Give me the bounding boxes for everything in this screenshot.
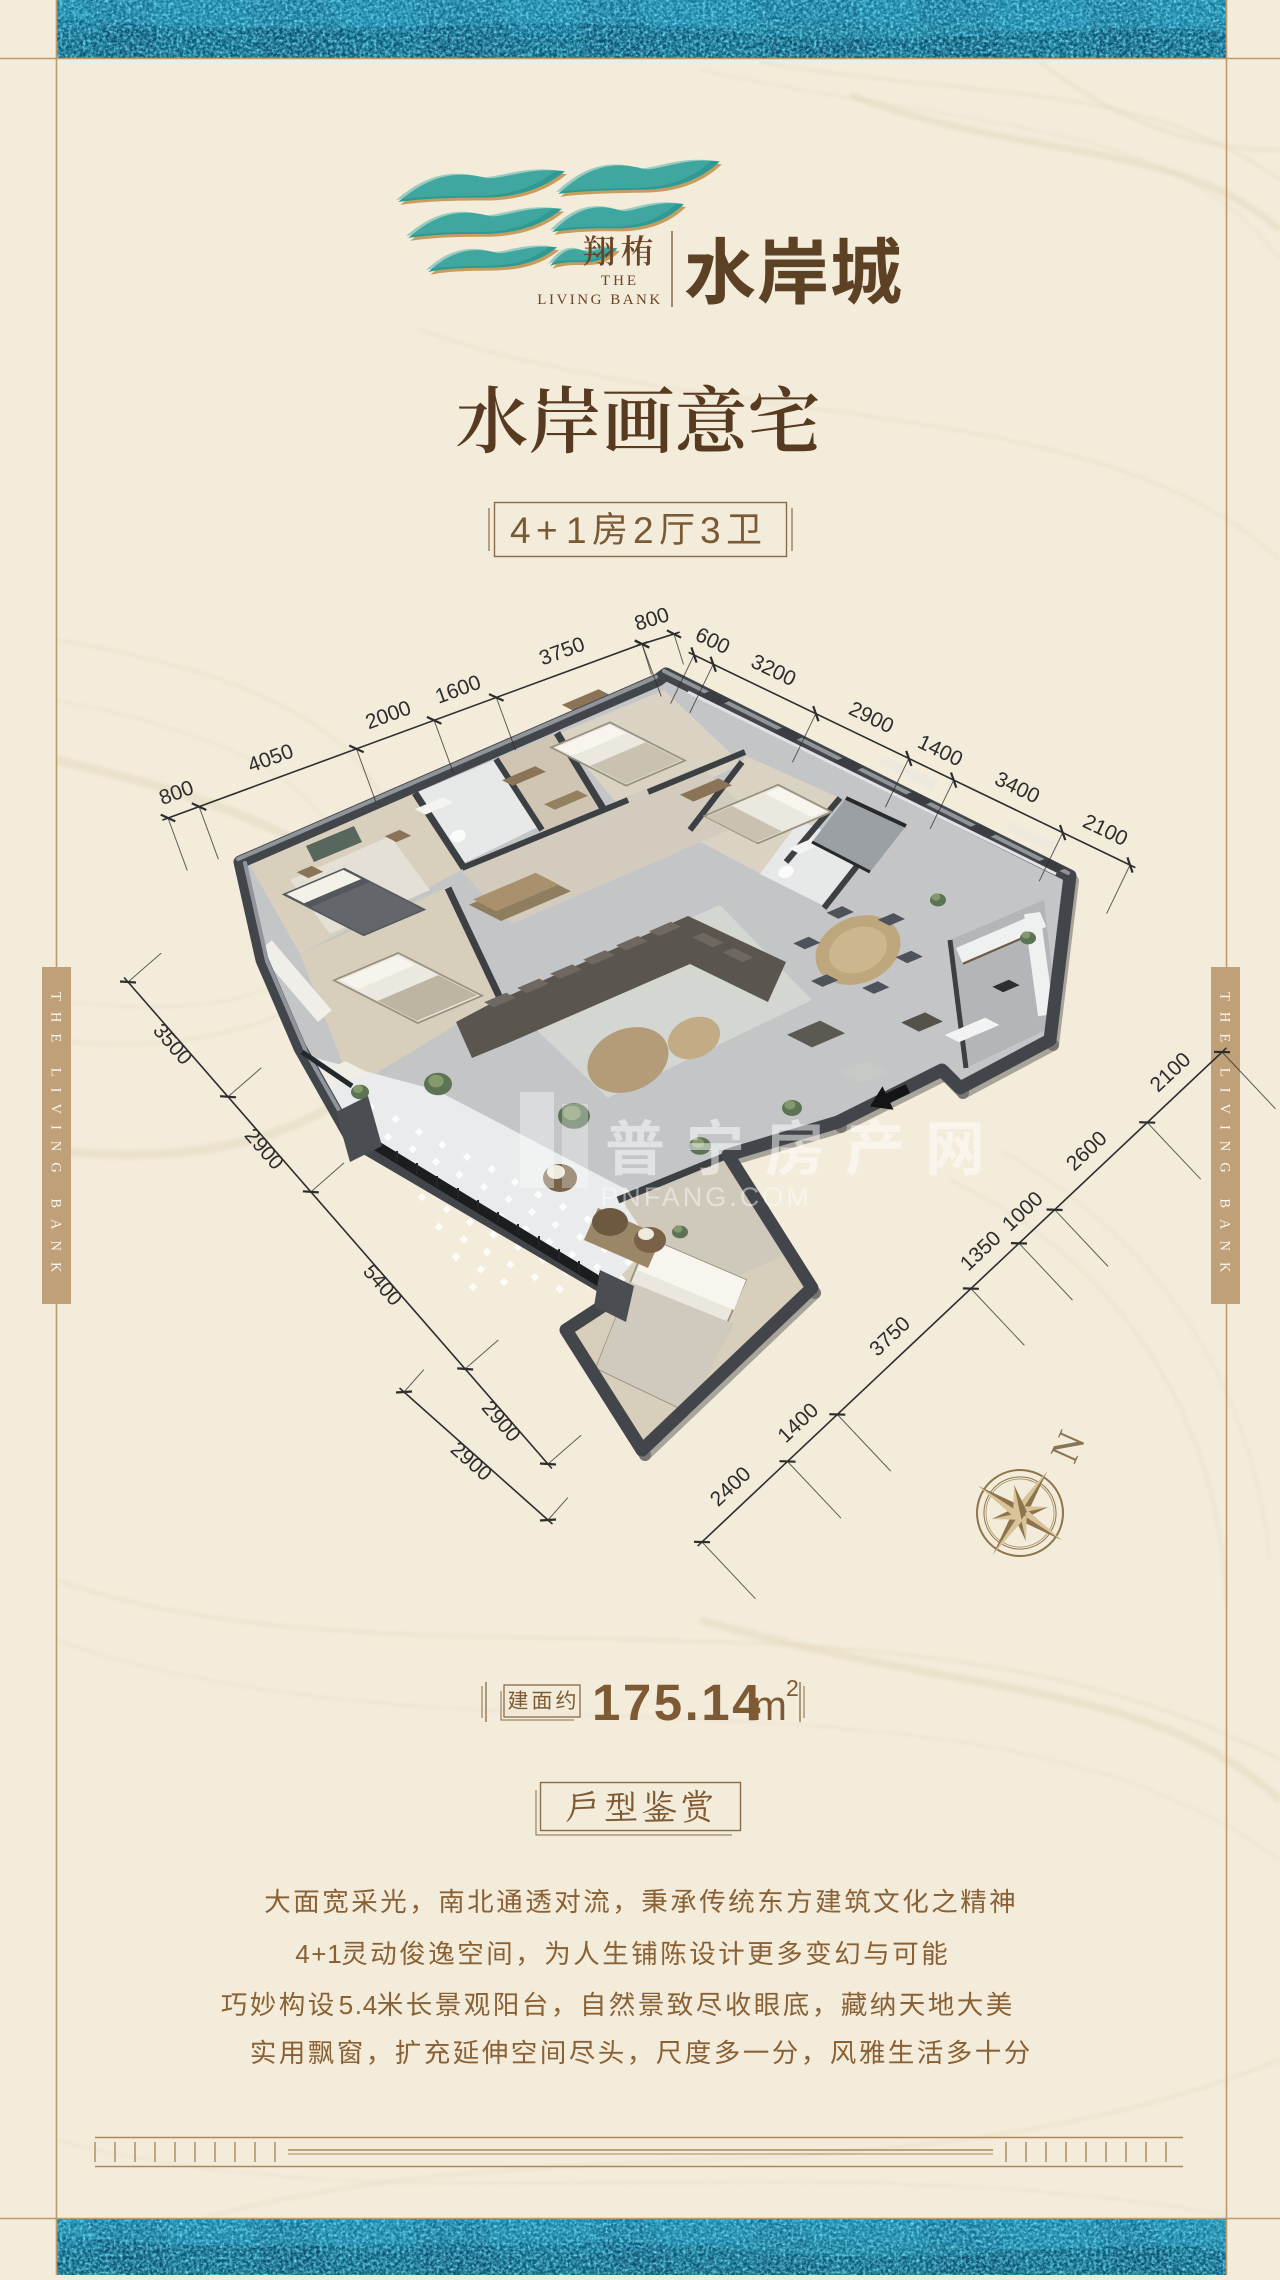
svg-text:4: 4 — [510, 510, 531, 551]
svg-text:3: 3 — [700, 510, 721, 551]
svg-text:THE LIVING BANK: THE LIVING BANK — [1217, 992, 1233, 1283]
svg-text:175.14: 175.14 — [592, 1674, 763, 1731]
svg-text:5: 5 — [339, 1990, 353, 2020]
svg-text:THE: THE — [601, 273, 639, 289]
svg-text:THE LIVING BANK: THE LIVING BANK — [48, 992, 64, 1283]
svg-text:4: 4 — [295, 1939, 309, 1969]
svg-text:2: 2 — [633, 510, 654, 551]
svg-text:+: + — [311, 1939, 326, 1969]
svg-text:1: 1 — [327, 1939, 341, 1969]
svg-text:PNFANG.COM: PNFANG.COM — [600, 1182, 812, 1212]
svg-text:2: 2 — [786, 1675, 799, 1701]
svg-text:m: m — [752, 1682, 787, 1729]
svg-text:+: + — [536, 510, 558, 551]
svg-text:1: 1 — [566, 510, 587, 551]
svg-text:LIVING BANK: LIVING BANK — [537, 292, 662, 308]
svg-text:4: 4 — [363, 1990, 377, 2020]
svg-text:.: . — [355, 1990, 362, 2020]
